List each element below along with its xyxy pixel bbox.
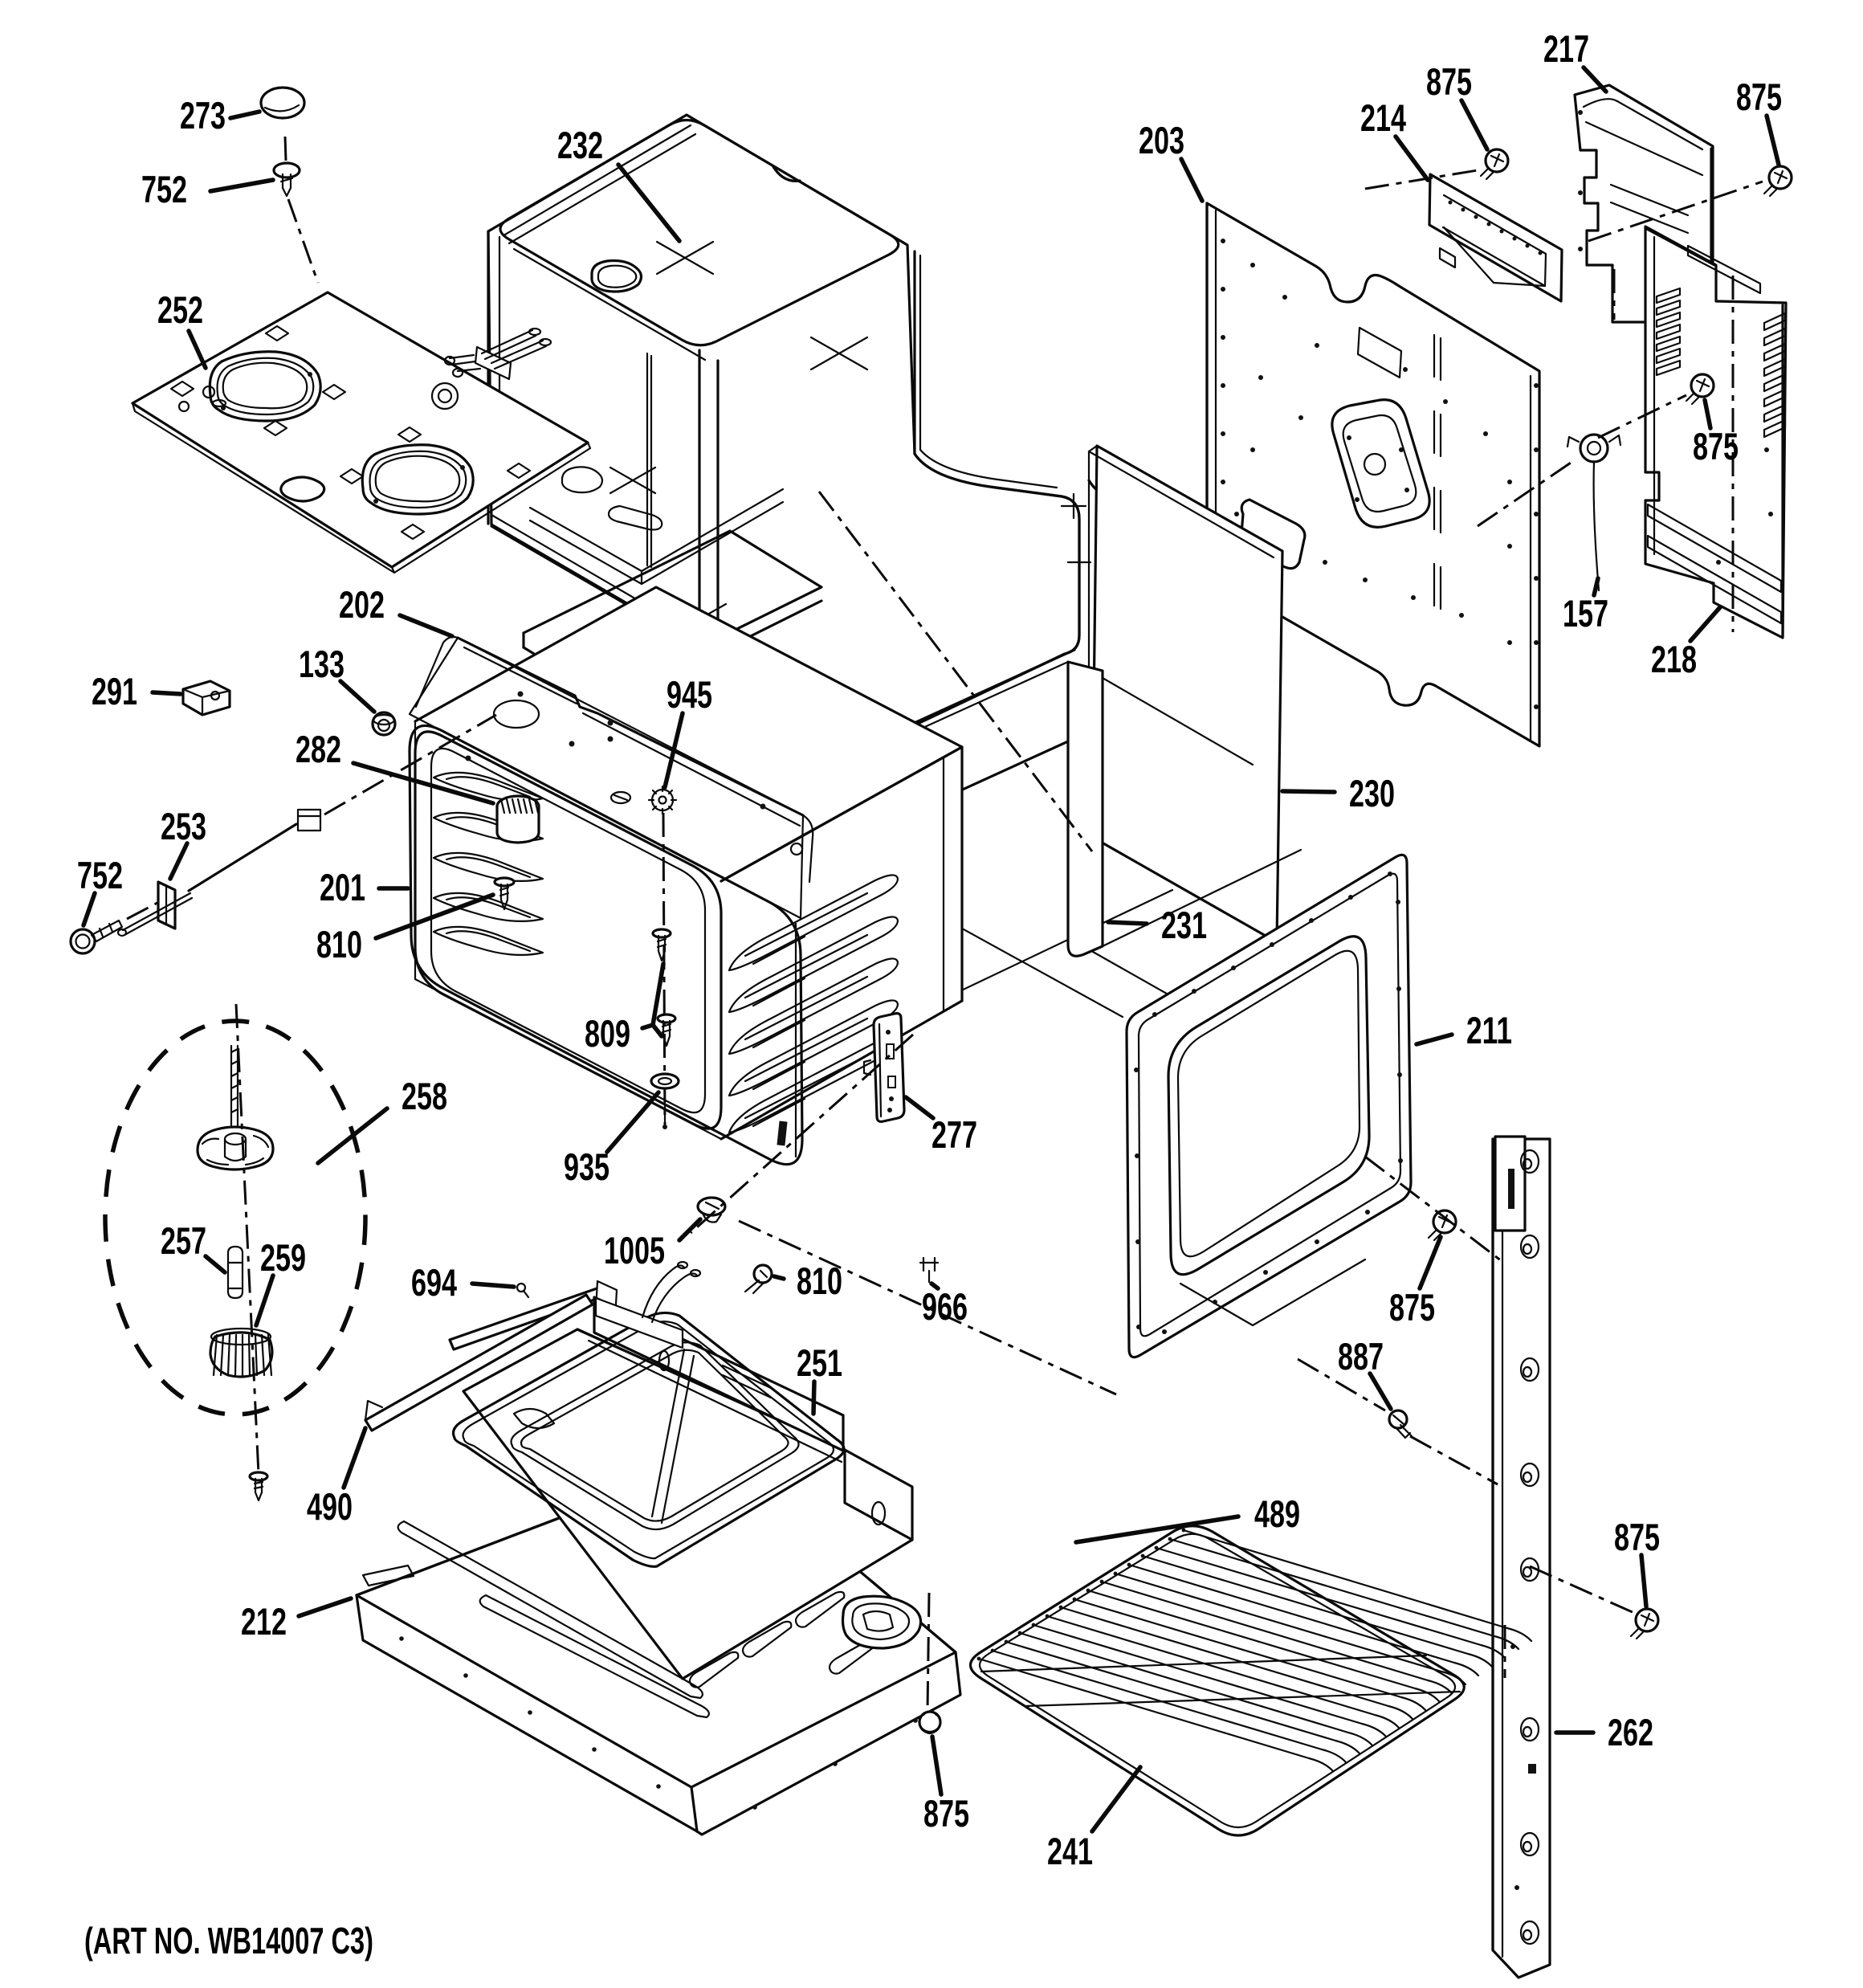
svg-text:259: 259 — [260, 1236, 306, 1279]
svg-text:875: 875 — [1736, 76, 1782, 118]
svg-text:202: 202 — [339, 583, 385, 626]
svg-text:282: 282 — [296, 728, 341, 770]
svg-text:157: 157 — [1563, 592, 1608, 635]
svg-text:251: 251 — [797, 1341, 842, 1384]
svg-text:252: 252 — [157, 288, 203, 331]
svg-text:1005: 1005 — [604, 1229, 665, 1272]
svg-text:966: 966 — [922, 1285, 968, 1328]
svg-text:212: 212 — [241, 1600, 287, 1643]
svg-text:133: 133 — [299, 643, 344, 685]
svg-text:694: 694 — [411, 1261, 457, 1304]
svg-text:257: 257 — [161, 1219, 206, 1262]
svg-text:201: 201 — [320, 866, 365, 908]
svg-text:211: 211 — [1466, 1009, 1512, 1051]
svg-text:490: 490 — [307, 1485, 353, 1528]
svg-text:875: 875 — [1426, 60, 1472, 103]
svg-text:809: 809 — [585, 1012, 630, 1055]
svg-text:277: 277 — [931, 1113, 977, 1156]
svg-text:291: 291 — [92, 670, 137, 712]
svg-text:810: 810 — [797, 1259, 842, 1302]
svg-text:258: 258 — [402, 1075, 447, 1117]
svg-text:875: 875 — [1614, 1516, 1660, 1558]
svg-text:810: 810 — [316, 923, 362, 965]
svg-text:273: 273 — [180, 94, 226, 137]
svg-text:214: 214 — [1360, 96, 1406, 139]
svg-text:203: 203 — [1139, 119, 1184, 161]
svg-text:230: 230 — [1349, 772, 1395, 814]
svg-text:(ART NO. WB14007 C3): (ART NO. WB14007 C3) — [84, 1920, 373, 1961]
svg-text:752: 752 — [77, 854, 123, 896]
svg-text:217: 217 — [1543, 27, 1589, 70]
svg-text:489: 489 — [1254, 1492, 1300, 1535]
svg-text:875: 875 — [1693, 425, 1739, 467]
svg-text:935: 935 — [564, 1145, 609, 1188]
svg-text:875: 875 — [923, 1792, 969, 1835]
svg-text:232: 232 — [557, 124, 603, 166]
svg-text:887: 887 — [1338, 1335, 1384, 1378]
svg-text:231: 231 — [1161, 904, 1207, 946]
svg-text:241: 241 — [1047, 1830, 1093, 1872]
svg-text:945: 945 — [667, 673, 712, 716]
svg-text:875: 875 — [1389, 1286, 1435, 1329]
svg-text:253: 253 — [161, 805, 206, 847]
svg-text:262: 262 — [1608, 1711, 1653, 1753]
svg-text:218: 218 — [1651, 638, 1697, 680]
svg-text:752: 752 — [141, 168, 187, 210]
